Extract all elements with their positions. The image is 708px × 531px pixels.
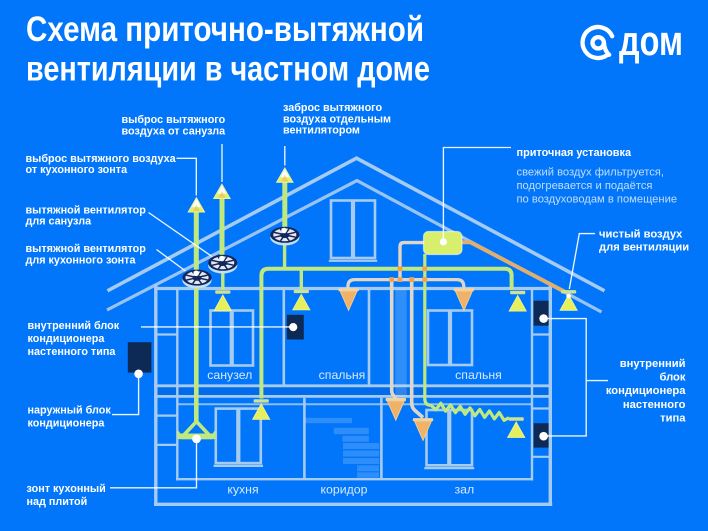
svg-text:для кухонного зонта: для кухонного зонта [26, 254, 137, 266]
svg-text:настенного: настенного [623, 399, 686, 411]
svg-text:кондиционера: кондиционера [28, 333, 106, 345]
svg-text:для вентиляции: для вентиляции [599, 242, 689, 254]
svg-text:блок: блок [659, 372, 685, 384]
svg-text:заброс вытяжного: заброс вытяжного [283, 102, 383, 114]
svg-text:наружный блок: наружный блок [28, 404, 112, 416]
svg-text:по воздуховодам в помещение: по воздуховодам в помещение [517, 194, 678, 206]
svg-text:над плитой: над плитой [27, 496, 88, 508]
svg-text:чистый воздух: чистый воздух [599, 229, 683, 241]
svg-text:вытяжной вентилятор: вытяжной вентилятор [26, 243, 147, 255]
svg-text:кондиционера: кондиционера [28, 417, 106, 429]
svg-text:вытяжной вентилятор: вытяжной вентилятор [26, 205, 147, 217]
svg-text:свежий воздух фильтруется,: свежий воздух фильтруется, [517, 167, 664, 179]
svg-text:кухня: кухня [227, 483, 258, 497]
svg-text:зал: зал [454, 483, 474, 497]
svg-text:спальня: спальня [319, 368, 366, 382]
svg-text:подогревается и подаётся: подогревается и подаётся [517, 180, 653, 192]
svg-text:от кухонного зонта: от кухонного зонта [26, 164, 129, 176]
svg-text:приточная установка: приточная установка [517, 147, 632, 159]
svg-text:воздуха отдельным: воздуха отдельным [283, 113, 391, 125]
svg-text:настенного типа: настенного типа [28, 346, 117, 358]
svg-text:вентиляции в частном доме: вентиляции в частном доме [26, 50, 430, 89]
svg-text:зонт кухонный: зонт кухонный [27, 483, 106, 495]
svg-text:типа: типа [660, 412, 686, 424]
svg-text:коридор: коридор [321, 483, 368, 497]
svg-text:внутренний: внутренний [620, 358, 686, 370]
svg-text:выброс вытяжного воздуха: выброс вытяжного воздуха [26, 153, 177, 165]
svg-text:санузел: санузел [207, 368, 252, 382]
svg-text:внутренний блок: внутренний блок [28, 320, 120, 332]
svg-text:Схема приточно-вытяжной: Схема приточно-вытяжной [26, 10, 424, 49]
svg-text:кондиционера: кондиционера [606, 385, 686, 397]
svg-text:спальня: спальня [455, 368, 502, 382]
svg-text:для санузла: для санузла [26, 216, 93, 228]
svg-text:выброс вытяжного: выброс вытяжного [122, 114, 226, 126]
svg-text:воздуха от санузла: воздуха от санузла [122, 125, 227, 137]
svg-text:дом: дом [619, 17, 683, 64]
svg-text:вентилятором: вентилятором [283, 125, 360, 137]
